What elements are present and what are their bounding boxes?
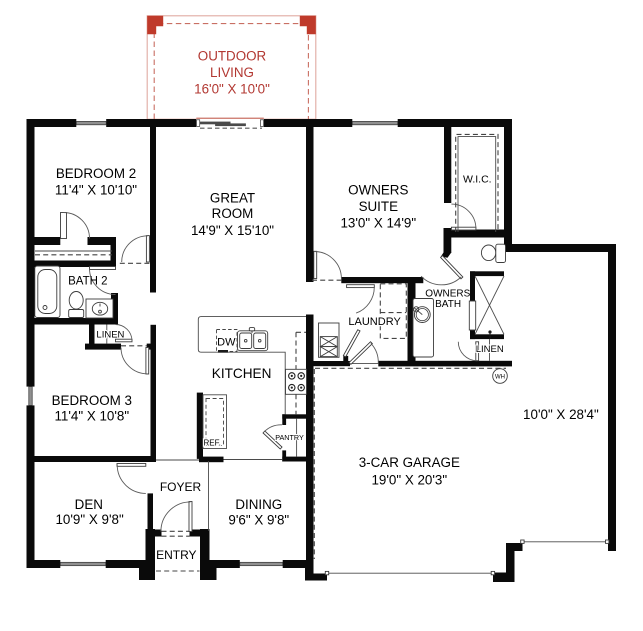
svg-text:BATH: BATH [435,299,461,310]
svg-text:LINEN: LINEN [476,344,504,355]
svg-text:ROOM: ROOM [212,206,254,221]
svg-text:11'4" X 10'10": 11'4" X 10'10" [55,182,137,197]
svg-text:KITCHEN: KITCHEN [212,366,272,381]
svg-text:PANTRY: PANTRY [275,433,304,442]
svg-text:REF.: REF. [204,439,221,448]
svg-text:10'0" X 28'4": 10'0" X 28'4" [523,407,599,422]
svg-text:W.I.C.: W.I.C. [463,173,492,185]
svg-text:FOYER: FOYER [160,480,202,494]
svg-text:16'0" X 10'0": 16'0" X 10'0" [194,82,270,97]
svg-text:BEDROOM 3: BEDROOM 3 [52,393,132,408]
svg-text:LINEN: LINEN [96,330,124,341]
svg-text:OWNERS: OWNERS [425,289,470,300]
svg-text:DINING: DINING [235,497,282,512]
svg-text:BATH 2: BATH 2 [68,276,107,288]
svg-text:3-CAR GARAGE: 3-CAR GARAGE [359,455,460,470]
svg-text:10'9" X 9'8": 10'9" X 9'8" [55,512,123,527]
svg-text:ENTRY: ENTRY [156,548,196,562]
svg-text:9'6" X 9'8": 9'6" X 9'8" [228,512,289,527]
svg-text:GREAT: GREAT [210,191,255,206]
svg-text:LIVING: LIVING [210,65,254,80]
svg-text:OUTDOOR: OUTDOOR [198,49,267,64]
svg-text:SUITE: SUITE [359,199,399,214]
svg-text:OWNERS: OWNERS [348,182,408,197]
svg-text:11'4" X 10'8": 11'4" X 10'8" [54,409,129,424]
svg-text:WH: WH [495,375,505,381]
svg-text:LAUNDRY: LAUNDRY [348,316,401,328]
svg-text:DEN: DEN [75,497,103,512]
svg-text:14'9" X 15'10": 14'9" X 15'10" [191,223,274,238]
svg-text:13'0" X 14'9": 13'0" X 14'9" [340,215,416,230]
svg-text:DW: DW [217,337,236,349]
svg-text:BEDROOM 2: BEDROOM 2 [56,166,136,181]
svg-text:19'0" X 20'3": 19'0" X 20'3" [371,472,447,487]
